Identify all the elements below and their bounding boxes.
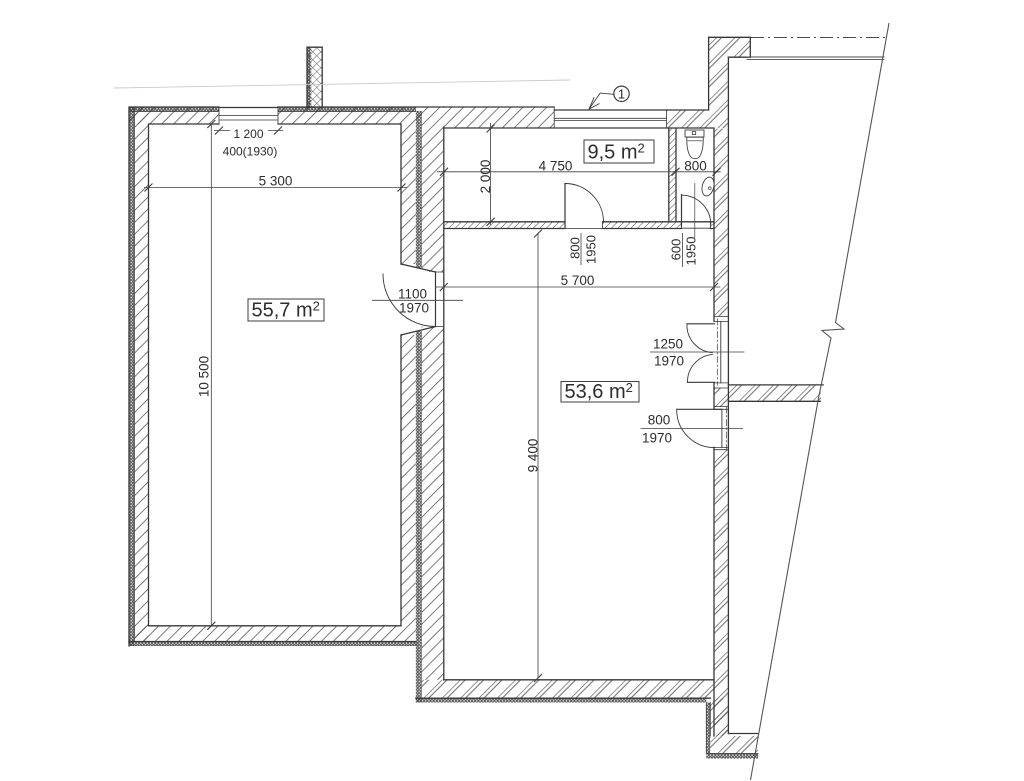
svg-text:1250: 1250 — [653, 337, 683, 352]
svg-text:1970: 1970 — [399, 301, 429, 316]
svg-text:4 750: 4 750 — [539, 159, 573, 174]
svg-text:9,5 m2: 9,5 m2 — [588, 141, 645, 164]
svg-text:1100: 1100 — [398, 287, 427, 302]
svg-text:800: 800 — [648, 413, 671, 428]
svg-text:5 700: 5 700 — [561, 273, 595, 288]
svg-text:600: 600 — [669, 239, 684, 261]
svg-text:800: 800 — [684, 159, 707, 174]
svg-text:1970: 1970 — [654, 354, 684, 369]
svg-text:1 200: 1 200 — [233, 127, 263, 141]
svg-text:2 000: 2 000 — [478, 160, 493, 194]
svg-text:1950: 1950 — [584, 235, 599, 264]
svg-text:9 400: 9 400 — [526, 439, 541, 473]
svg-text:800: 800 — [568, 237, 583, 259]
svg-text:53,6 m2: 53,6 m2 — [565, 380, 633, 403]
svg-text:55,7 m2: 55,7 m2 — [252, 299, 320, 322]
svg-text:400(1930): 400(1930) — [223, 145, 278, 159]
svg-text:1950: 1950 — [684, 237, 699, 266]
svg-text:1970: 1970 — [642, 431, 672, 446]
svg-text:10 500: 10 500 — [197, 356, 212, 397]
svg-text:5 300: 5 300 — [259, 174, 293, 189]
svg-text:1: 1 — [618, 87, 625, 102]
